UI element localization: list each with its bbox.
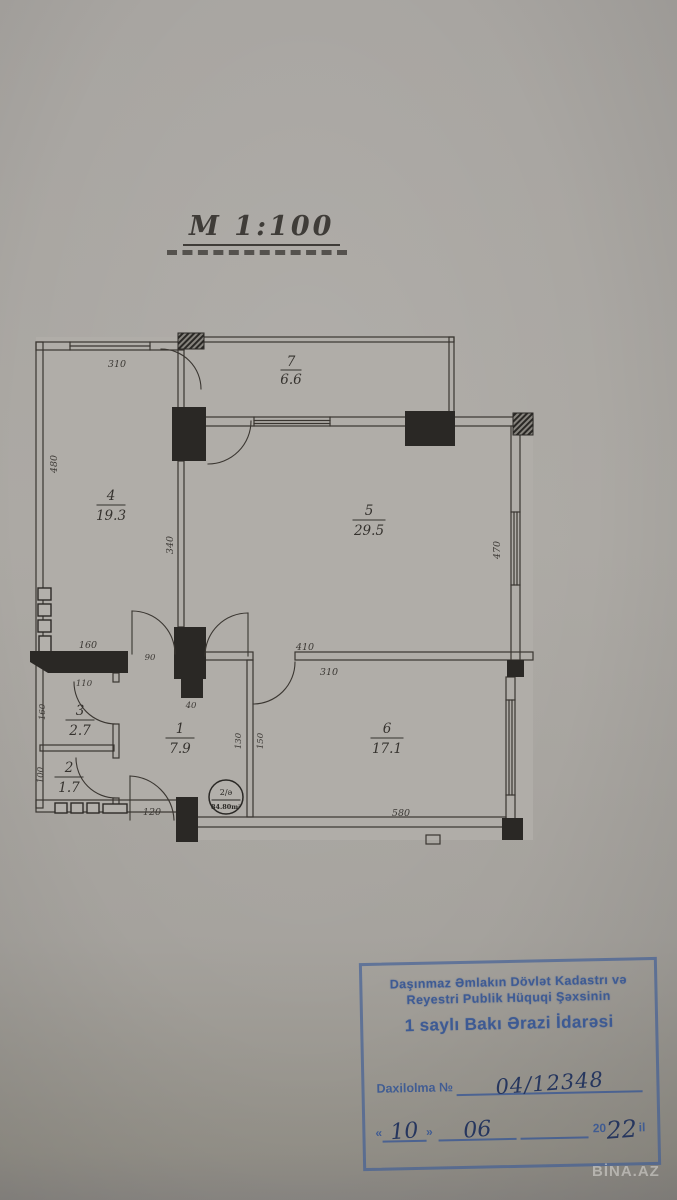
dim-entry-120: 120 xyxy=(143,807,161,818)
svg-text:6.6: 6.6 xyxy=(280,372,302,388)
stamp-date-row: « 10 » 06 20 22 il xyxy=(375,1118,645,1143)
date-century: 20 xyxy=(593,1121,607,1138)
dim-150: 150 xyxy=(256,732,266,749)
dim-wall-160: 160 xyxy=(79,640,97,651)
dim-room5-right: 470 xyxy=(492,541,503,560)
svg-text:7.9: 7.9 xyxy=(169,741,191,757)
dim-room2-left: 100 xyxy=(36,766,46,783)
svg-text:2.7: 2.7 xyxy=(68,723,91,739)
dim-room4-top: 310 xyxy=(108,359,126,370)
entry-number-value: 04/12348 xyxy=(495,1070,605,1096)
svg-text:29.5: 29.5 xyxy=(353,523,384,539)
registry-stamp: Daşınmaz Əmlakın Dövlət Kadastrı və Reye… xyxy=(359,957,661,1171)
entry-number-line: 04/12348 xyxy=(457,1072,643,1096)
svg-text:3: 3 xyxy=(76,703,85,719)
date-suffix: il xyxy=(639,1120,646,1137)
dim-130: 130 xyxy=(234,732,244,749)
dim-410: 410 xyxy=(295,642,314,653)
date-day-value: 10 xyxy=(389,1122,418,1141)
quote-close: » xyxy=(426,1125,433,1142)
svg-text:2: 2 xyxy=(64,760,74,776)
date-fill-line xyxy=(521,1136,589,1139)
apartment-footprint xyxy=(36,337,533,840)
dim-bottom-580: 580 xyxy=(392,808,410,819)
dim-40: 40 xyxy=(185,701,197,711)
svg-text:7: 7 xyxy=(287,354,296,370)
stamp-line-3: 1 saylı Bakı Ərazi İdarəsi xyxy=(363,1011,655,1037)
svg-text:6: 6 xyxy=(383,721,392,737)
svg-text:19.3: 19.3 xyxy=(96,508,126,524)
dim-room6-top: 310 xyxy=(320,667,338,678)
stamp-entry-row: Daxilolma № 04/12348 xyxy=(376,1072,642,1098)
date-year-value: 22 xyxy=(606,1121,638,1139)
svg-text:1.7: 1.7 xyxy=(58,780,80,796)
date-month-line: 06 xyxy=(439,1121,517,1142)
svg-text:5: 5 xyxy=(365,503,374,519)
unit-badge-bottom: 84.80m² xyxy=(211,803,241,811)
dim-divider: 340 xyxy=(165,536,176,554)
dim-room3-left: 160 xyxy=(38,703,48,720)
svg-text:17.1: 17.1 xyxy=(372,741,402,757)
dim-door-90: 90 xyxy=(145,653,156,663)
watermark-corner: BİNA.AZ xyxy=(592,1163,660,1180)
unit-badge-top: 2/ə xyxy=(220,788,233,797)
dim-110: 110 xyxy=(76,679,93,689)
date-month-value: 06 xyxy=(463,1121,492,1140)
unit-badge: 2/ə 84.80m² xyxy=(209,780,243,814)
date-day-line: 10 xyxy=(382,1123,426,1143)
svg-text:1: 1 xyxy=(176,721,185,737)
svg-text:4: 4 xyxy=(106,488,116,504)
entry-number-label: Daxilolma № xyxy=(376,1080,453,1098)
scanned-floor-plan-page: { "title": { "scale": "M 1:100" }, "wate… xyxy=(0,0,677,1200)
dim-room4-left: 480 xyxy=(49,455,60,474)
